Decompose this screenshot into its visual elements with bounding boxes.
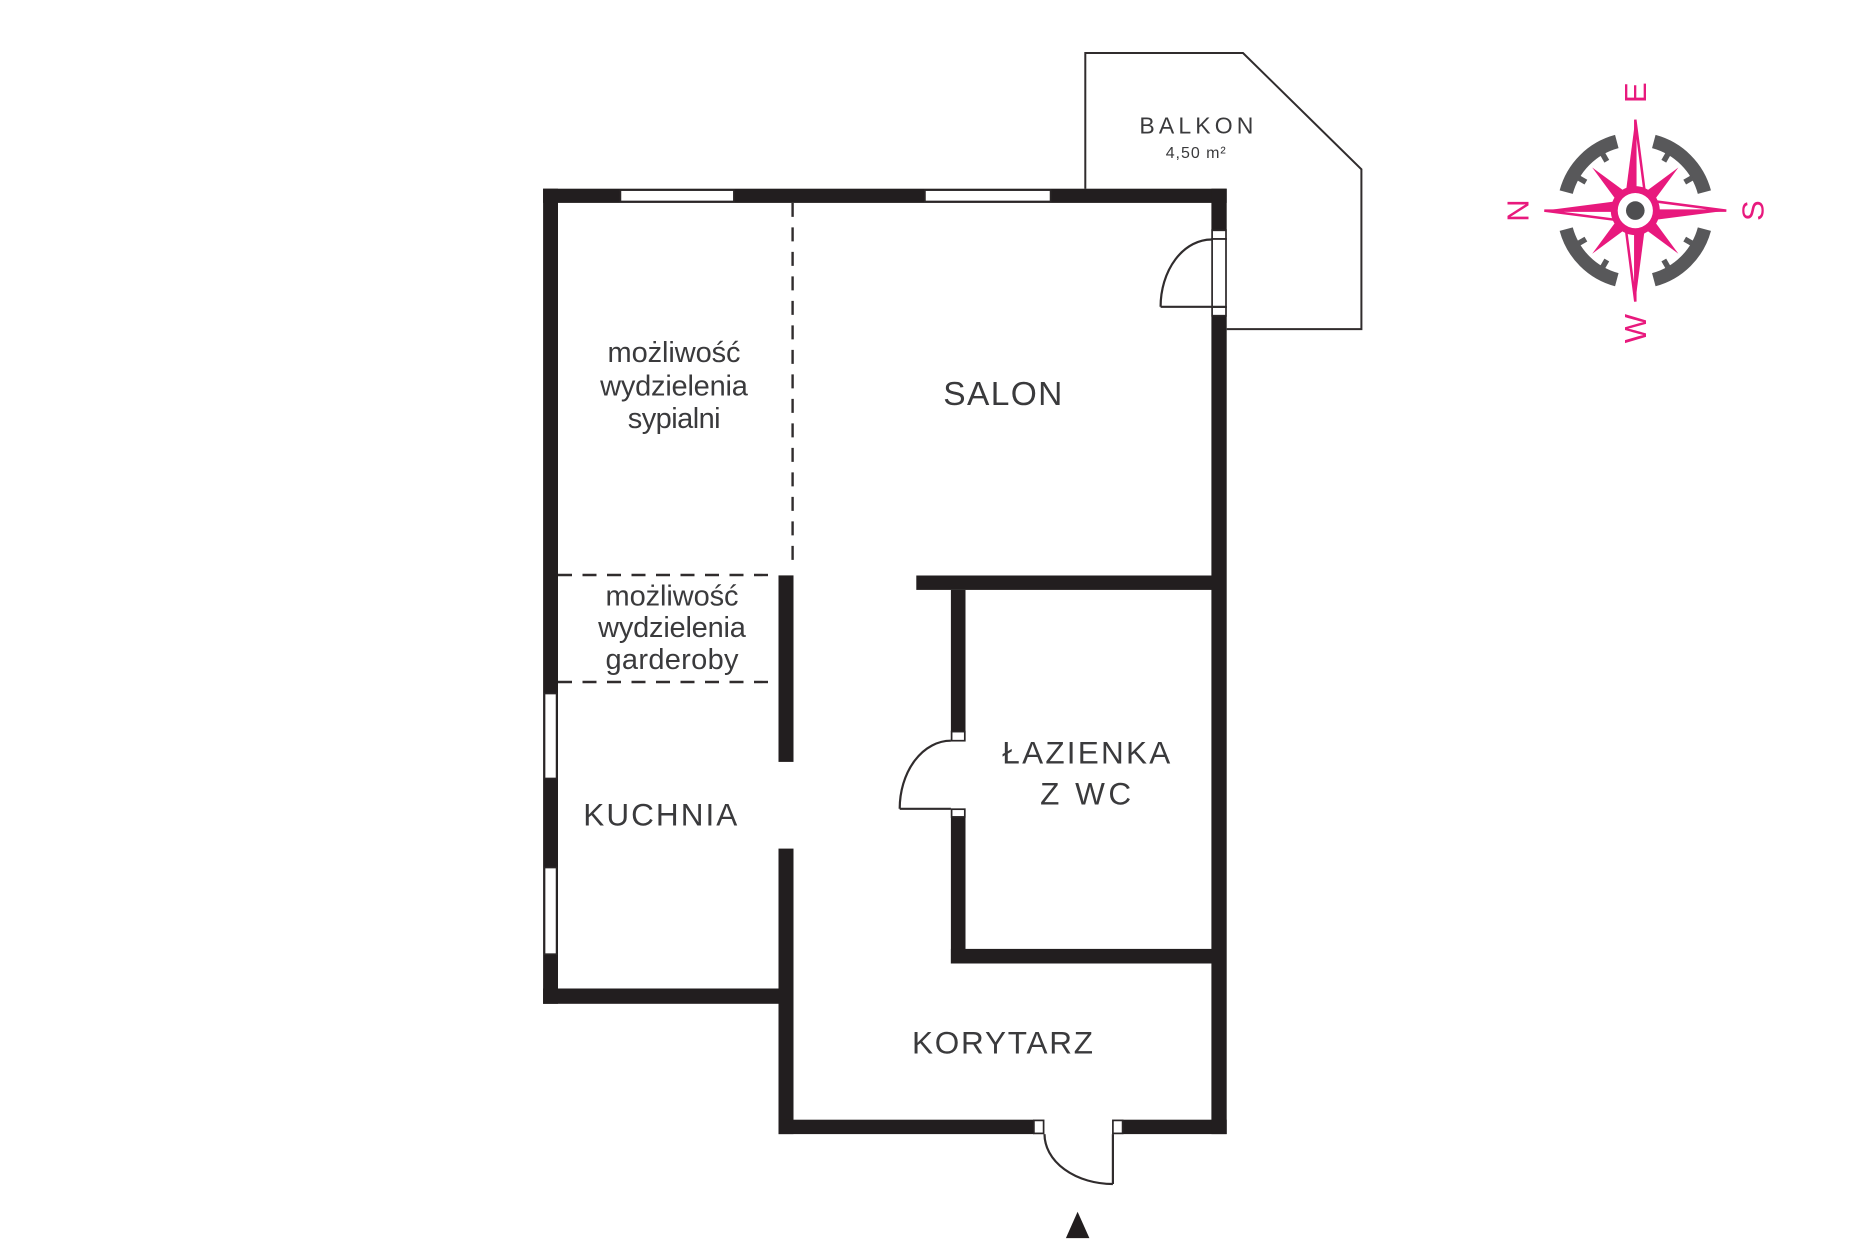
svg-text:E: E [1618,82,1653,103]
svg-text:możliwość: możliwość [606,581,739,613]
svg-text:N: N [1500,199,1535,221]
svg-text:W: W [1618,313,1653,343]
svg-text:KUCHNIA: KUCHNIA [583,797,737,833]
svg-text:wydzielenia: wydzielenia [599,371,749,403]
svg-text:możliwość: możliwość [608,337,741,369]
svg-text:SALON: SALON [943,376,1062,413]
svg-text:Z WC: Z WC [1040,775,1131,811]
svg-text:S: S [1735,200,1770,221]
svg-text:sypialni: sypialni [628,403,721,435]
svg-text:4,50 m²: 4,50 m² [1166,145,1227,162]
svg-text:garderoby: garderoby [606,644,740,676]
svg-text:wydzielenia: wydzielenia [597,612,747,644]
svg-text:KORYTARZ: KORYTARZ [912,1025,1093,1061]
svg-text:ŁAZIENKA: ŁAZIENKA [1002,734,1170,770]
